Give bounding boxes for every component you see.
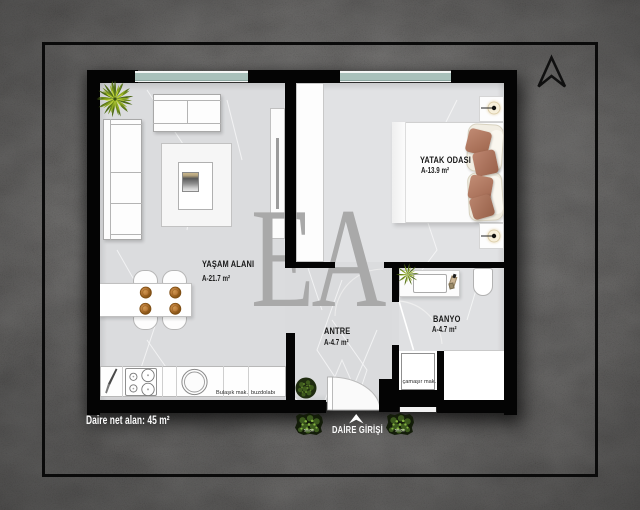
svg-text:50x50: 50x50 [304,428,314,432]
svg-text:50x50: 50x50 [395,428,405,432]
